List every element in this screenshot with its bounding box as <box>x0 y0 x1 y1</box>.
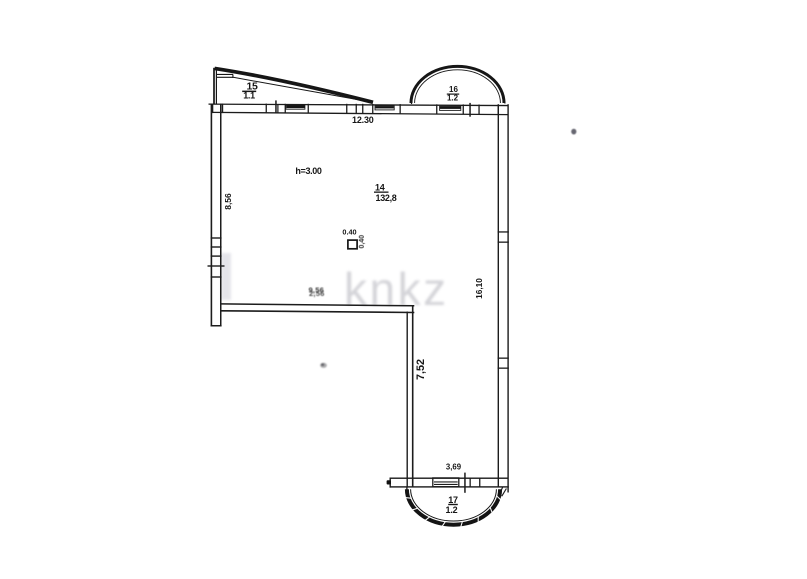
svg-text:17: 17 <box>448 495 458 505</box>
svg-text:2,56: 2,56 <box>309 289 325 298</box>
svg-text:1.2: 1.2 <box>446 505 458 515</box>
svg-text:12.30: 12.30 <box>352 115 374 125</box>
svg-text:16,10: 16,10 <box>474 278 484 299</box>
svg-text:3,69: 3,69 <box>446 462 462 471</box>
svg-text:0,40: 0,40 <box>359 235 366 249</box>
svg-text:h=3.00: h=3.00 <box>295 166 322 176</box>
svg-text:14: 14 <box>375 182 385 192</box>
svg-text:0.40: 0.40 <box>342 227 356 236</box>
svg-text:16: 16 <box>449 85 458 94</box>
svg-text:8,56: 8,56 <box>223 193 233 210</box>
svg-text:1.1: 1.1 <box>243 91 255 101</box>
svg-text:1.2: 1.2 <box>447 94 459 103</box>
svg-text:7,52: 7,52 <box>415 359 427 380</box>
svg-text:132,8: 132,8 <box>375 193 396 203</box>
